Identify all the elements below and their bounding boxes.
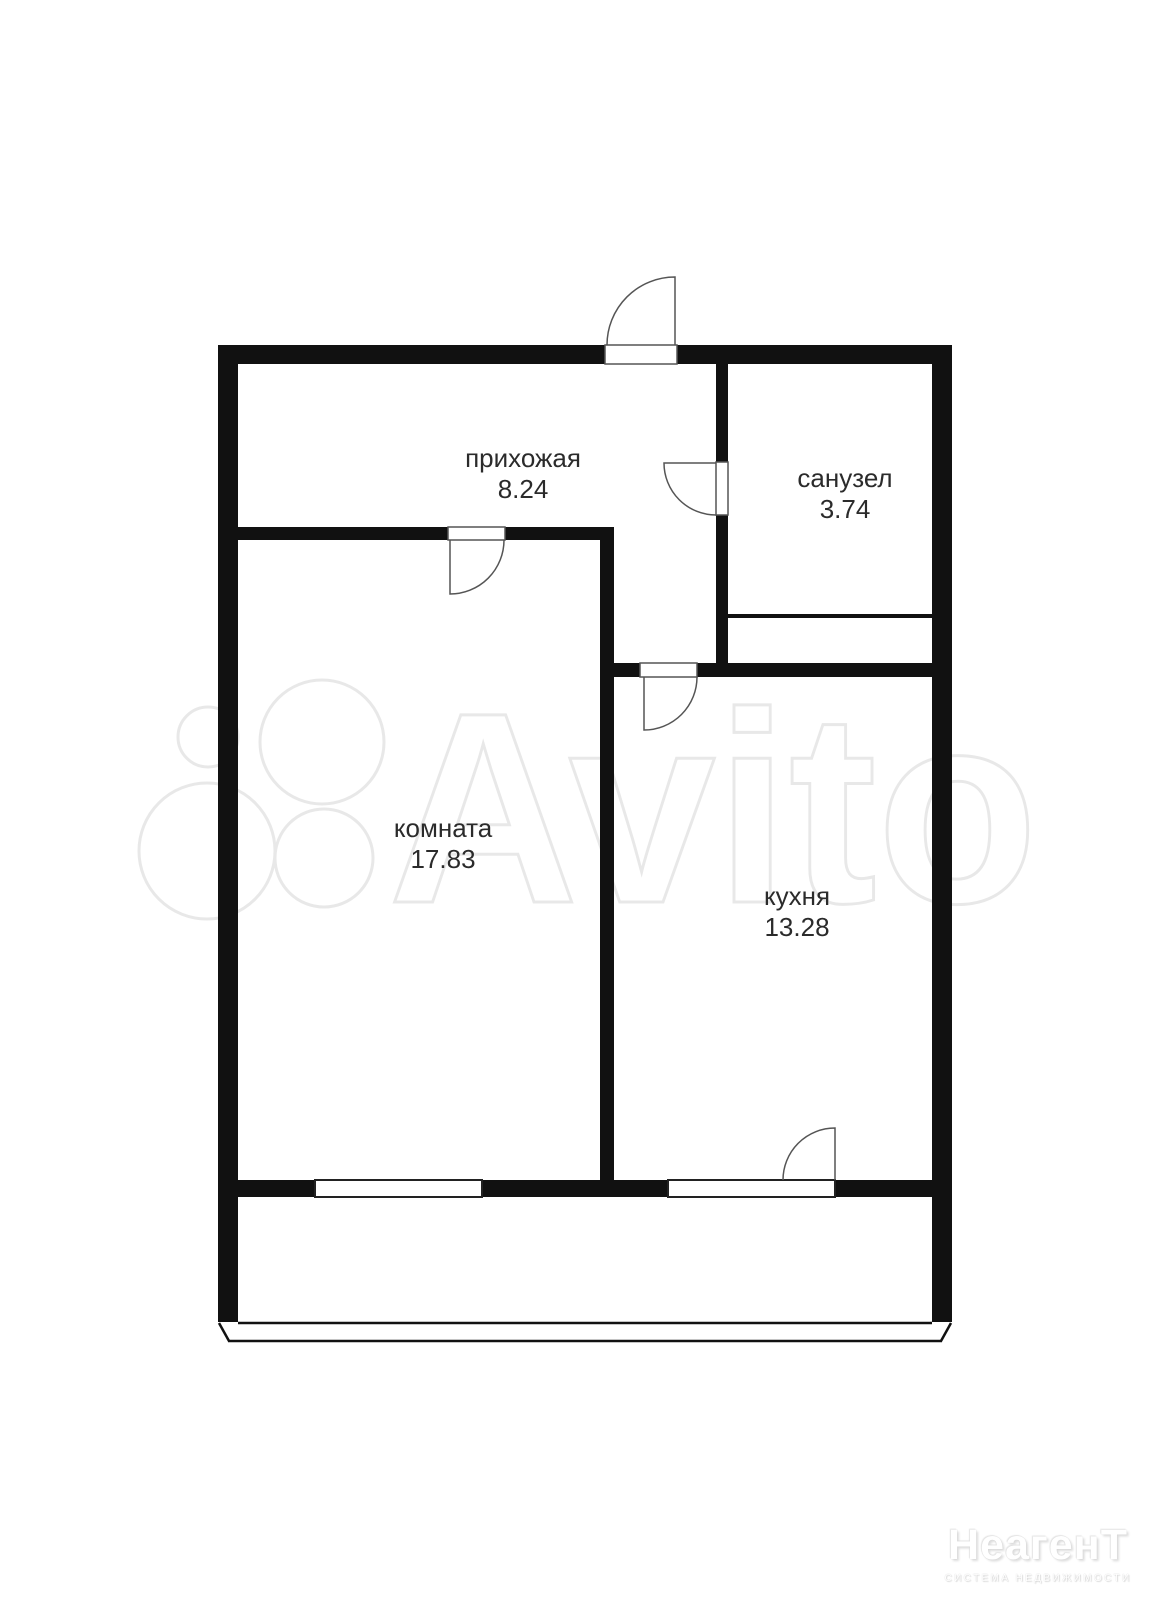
agency-watermark: НеагенТ система недвижимости [938, 1521, 1138, 1584]
wall-hallway-room-left [238, 527, 448, 540]
hallway-name: прихожая [465, 443, 581, 473]
kitchen-window-balcony-block [668, 1180, 835, 1197]
balcony-door-swing-icon [783, 1128, 835, 1180]
wall-top-left-segment [218, 345, 605, 364]
wall-top-right-segment [677, 345, 952, 364]
bathroom-area: 3.74 [797, 494, 892, 525]
wall-left [218, 345, 238, 1322]
balcony-parapet-bevel-right [941, 1323, 951, 1341]
label-room: комната 17.83 [394, 813, 492, 875]
room-door-swing-icon [450, 540, 504, 594]
bathroom-name: санузел [797, 463, 892, 493]
floor-plan-drawing [0, 0, 1171, 1600]
label-bathroom: санузел 3.74 [797, 463, 892, 525]
room-door-threshold [448, 527, 505, 540]
kitchen-area: 13.28 [764, 912, 830, 943]
floor-plan-image: Avito [0, 0, 1171, 1600]
door-swings [450, 277, 835, 1180]
hallway-area: 8.24 [465, 474, 581, 505]
label-hallway: прихожая 8.24 [465, 443, 581, 505]
wall-bathroom-left-upper [716, 364, 728, 462]
kitchen-door-threshold [640, 663, 697, 677]
wall-bathroom-bottom-thin [728, 614, 932, 618]
bathroom-door-swing-icon [664, 463, 716, 515]
agency-tagline-text: система недвижимости [938, 1573, 1138, 1584]
kitchen-door-swing-icon [644, 677, 697, 730]
wall-kitchen-top-left [614, 663, 640, 677]
entrance-door-threshold [605, 345, 677, 364]
wall-bottom-segment-1 [218, 1180, 315, 1197]
balcony-parapet-bevel-left [219, 1323, 229, 1341]
wall-hallway-room-right [505, 527, 614, 540]
wall-right [932, 345, 952, 1322]
wall-bottom-segment-2 [482, 1180, 668, 1197]
label-kitchen: кухня 13.28 [764, 881, 830, 943]
wall-bottom-segment-3 [835, 1180, 952, 1197]
bathroom-door-threshold [716, 462, 728, 515]
room-area: 17.83 [394, 844, 492, 875]
wall-kitchen-top-right [697, 663, 932, 677]
kitchen-name: кухня [764, 881, 830, 911]
room-name: комната [394, 813, 492, 843]
wall-bathroom-left-lower [716, 515, 728, 663]
room-window [315, 1180, 482, 1197]
entrance-door-swing-icon [607, 277, 675, 345]
wall-room-kitchen-divider [600, 527, 614, 1180]
balcony-parapet [219, 1323, 951, 1341]
agency-logo-text: НеагенТ [938, 1521, 1138, 1570]
door-thresholds [448, 345, 728, 677]
